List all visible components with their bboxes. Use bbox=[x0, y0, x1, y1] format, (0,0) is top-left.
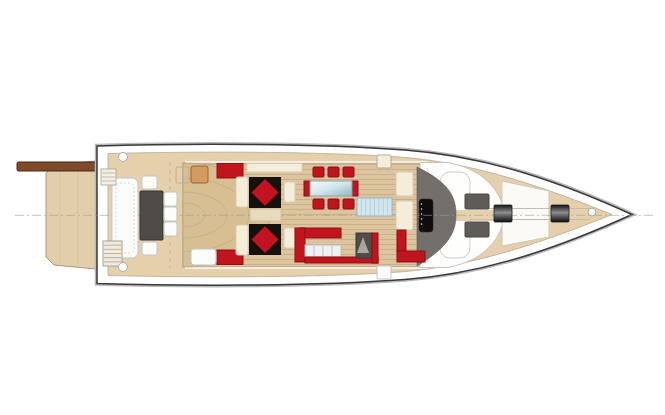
galley-counter-top bbox=[300, 228, 341, 238]
helm-bench bbox=[397, 251, 425, 262]
dining-chair-port-1 bbox=[313, 167, 324, 177]
dining-chair-port-2 bbox=[328, 167, 339, 177]
sunpad-starboard bbox=[465, 222, 489, 237]
dining-chair-port-3 bbox=[343, 167, 354, 177]
lounge-sofa-port bbox=[236, 177, 248, 207]
galley-appliances bbox=[305, 245, 341, 257]
galley-counter-right bbox=[372, 233, 378, 263]
helm-bench-side bbox=[397, 230, 406, 251]
galley-counter-left bbox=[295, 228, 305, 262]
lounge-center-cabinet bbox=[250, 209, 281, 221]
lounge-side-table-port bbox=[284, 182, 295, 202]
boarding-stairs bbox=[103, 241, 122, 266]
passerelle-gangway bbox=[17, 162, 97, 171]
wicker-chair bbox=[191, 166, 208, 183]
deck-plan-drawing bbox=[0, 0, 665, 415]
bow-winch-aft bbox=[494, 205, 512, 222]
deck-fitting-aft-starboard bbox=[119, 263, 128, 272]
companionway-glass-stairs bbox=[357, 198, 392, 216]
cockpit-chair-side-2 bbox=[164, 207, 177, 221]
deck-fitting-aft-port bbox=[119, 153, 128, 162]
dining-chair-stbd-3 bbox=[343, 199, 354, 209]
lounge-sofa-starboard bbox=[236, 225, 248, 255]
salon-bench-aft-starboard bbox=[191, 249, 216, 265]
cockpit-chair-side-1 bbox=[164, 192, 177, 206]
lounge-side-table-starboard bbox=[284, 228, 295, 248]
bow-fitting bbox=[588, 208, 596, 216]
dining-chair-stbd-2 bbox=[328, 199, 339, 209]
cockpit-chair-head-aft bbox=[142, 176, 157, 189]
sunpad-port bbox=[465, 194, 489, 209]
cockpit-chair-side-3 bbox=[164, 222, 177, 236]
yacht-deck-plan-canvas bbox=[0, 0, 665, 415]
cockpit-chair-head-fwd bbox=[142, 242, 157, 255]
cockpit-table bbox=[140, 191, 163, 240]
salon-cabinet-port bbox=[247, 164, 302, 173]
dining-table-end-aft bbox=[304, 181, 310, 196]
dining-table-glass bbox=[310, 181, 352, 196]
dining-table-end-fwd bbox=[352, 181, 358, 196]
boarding-gate-steps bbox=[101, 169, 116, 185]
dining-chair-stbd-1 bbox=[313, 199, 324, 209]
deck-box-port bbox=[377, 155, 391, 168]
bow-winch-fwd bbox=[551, 205, 569, 222]
deck-box-starboard bbox=[377, 266, 391, 279]
red-sideboard-port bbox=[217, 164, 243, 179]
helm-seat-aft bbox=[396, 172, 413, 196]
helm-seat-fwd bbox=[396, 201, 413, 230]
